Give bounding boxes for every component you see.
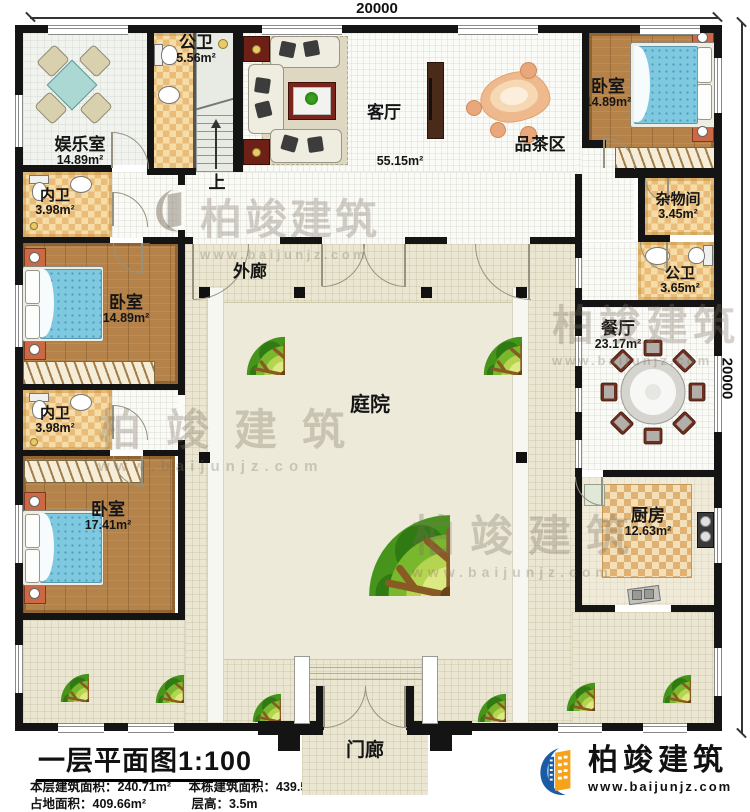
nightstand-knob [697,126,708,137]
pillow [25,270,40,304]
wall [575,300,722,307]
window [640,25,700,35]
wall [405,237,447,244]
label-living: 客厅 [352,104,416,122]
burner-icon [700,531,711,542]
window [48,25,128,35]
wall [278,721,300,751]
wall [615,168,722,178]
window [643,723,687,733]
bush-icon [219,660,281,722]
window [128,723,174,733]
cushion [254,77,271,94]
wall [530,237,575,244]
label-entertainment: 娱乐室 14.89m² [25,136,135,168]
door-jamb [406,686,414,730]
window [714,648,722,696]
bush-icon [444,660,506,722]
plant-box-star [252,45,261,54]
label-kitchen: 厨房 12.63m² [610,507,686,539]
door-leaf [603,138,605,168]
wall [147,33,154,172]
up-arrow-head-icon [211,119,221,128]
sofa-left [248,64,284,134]
window [15,505,23,563]
door-leaf [192,244,194,299]
window [714,508,722,563]
pillow [697,84,712,120]
stat-value: 409.66m² [93,797,147,811]
label-living-area: 55.15m² [360,155,440,169]
bush-icon [533,649,595,711]
brand-url: www.baijunjz.com [588,779,732,794]
wall [671,605,722,612]
tv-icon [429,78,432,120]
label-public-bath-2: 公卫 3.65m² [644,266,716,296]
passage [178,185,185,230]
floor-drain-icon [30,438,38,446]
column [294,287,305,298]
porch-steps [308,662,422,680]
wall [147,168,196,175]
label-private-bath-2: 内卫 3.98m² [22,406,88,436]
wall [575,605,615,612]
tree-icon [272,418,450,596]
wall [143,450,185,456]
window [262,25,342,35]
door-leaf [112,405,114,439]
door-leaf [404,244,406,286]
window [58,723,104,733]
toilet-icon [688,247,705,264]
bush-icon [122,641,184,703]
window [575,440,582,468]
wall [603,470,722,477]
door-leaf [601,477,603,505]
up-arrow-icon [215,127,217,169]
stat-value: 240.71m² [118,780,172,794]
stat-label: 本栋建筑面积： [189,780,277,794]
label-dining: 餐厅 23.17m² [580,320,656,352]
bush-icon [27,640,89,702]
tree-icon [438,291,522,375]
nightstand-knob [29,496,40,507]
door-leaf [323,686,325,727]
wall [15,384,185,390]
nightstand-knob [29,588,40,599]
label-courtyard: 庭院 [335,395,405,417]
door-leaf [112,192,114,226]
wall [280,237,322,244]
door-leaf [141,243,143,273]
wall [15,237,110,243]
stat-value: 3.5m [229,797,258,811]
bush-icon [629,641,691,703]
dimension-top: 20000 [337,0,417,17]
pillow [697,47,712,83]
sink-icon [158,86,180,104]
floor-plan-page: 娱乐室 14.89m² 公卫 5.56m² 客厅 55.15m² 品茶区 卧室 … [0,0,750,812]
label-storage: 杂物间 3.45m² [640,192,716,222]
door-leaf [528,244,530,299]
label-porch: 门廊 [334,741,396,762]
nightstand-knob [29,344,40,355]
label-public-bath-1: 公卫 5.56m² [160,34,232,66]
window [15,285,23,347]
passage [178,395,185,440]
cushion [307,136,324,153]
label-tea-area: 品茶区 [500,136,580,154]
burner-icon [700,516,711,527]
stat-label: 层高： [192,797,230,811]
plant-box-star [252,148,261,157]
label-stairs-up: 上 [204,174,230,192]
cushion [303,40,320,57]
nightstand-knob [29,252,40,263]
door-leaf [404,686,406,727]
plant-icon [305,92,318,105]
wall [430,721,452,751]
floor-drain-icon [30,222,38,230]
stat-label: 本层建筑面积： [30,780,118,794]
column [199,452,210,463]
window [714,58,722,113]
cushion [279,41,297,59]
dimension-line-right [741,22,743,734]
sink-basin [632,590,642,600]
brand-block: 柏竣建筑 www.baijunjz.com [588,746,732,794]
tree-icon [201,291,285,375]
bath-2-entry [582,242,638,300]
dining-set [598,337,708,447]
door-leaf [141,456,143,486]
wall [15,613,185,620]
label-bedroom-2: 卧室 14.89m² [86,294,166,326]
wardrobe [23,361,155,385]
window [575,388,582,412]
door-leaf [321,244,323,286]
label-bedroom-3: 卧室 17.41m² [68,501,148,533]
wall [15,450,110,456]
column [516,452,527,463]
porch-pillar [294,656,310,724]
window [558,723,602,733]
dimension-right: 20000 [719,334,736,424]
label-private-bath-1: 内卫 3.98m² [22,188,88,218]
column [421,287,432,298]
pillow [25,514,40,548]
stat-label: 占地面积： [30,797,93,811]
window [575,258,582,288]
window [15,645,23,693]
wall [638,235,670,242]
label-veranda: 外廊 [220,263,280,281]
porch-pillar [422,656,438,724]
tea-cushion [520,62,537,79]
wall [150,237,193,244]
stats-line-2: 占地面积：409.66m² 层高：3.5m [30,793,272,812]
window [458,25,538,35]
sink-basin [644,589,654,599]
brand-name: 柏竣建筑 [588,746,732,776]
brand-logo-icon [534,744,580,798]
dimension-line-top [30,17,718,19]
window [15,95,23,147]
pillow [25,549,40,583]
label-bedroom-1: 卧室 14.89m² [568,78,648,110]
wall [233,33,243,172]
pillow [25,305,40,339]
tea-cushion [466,100,482,116]
